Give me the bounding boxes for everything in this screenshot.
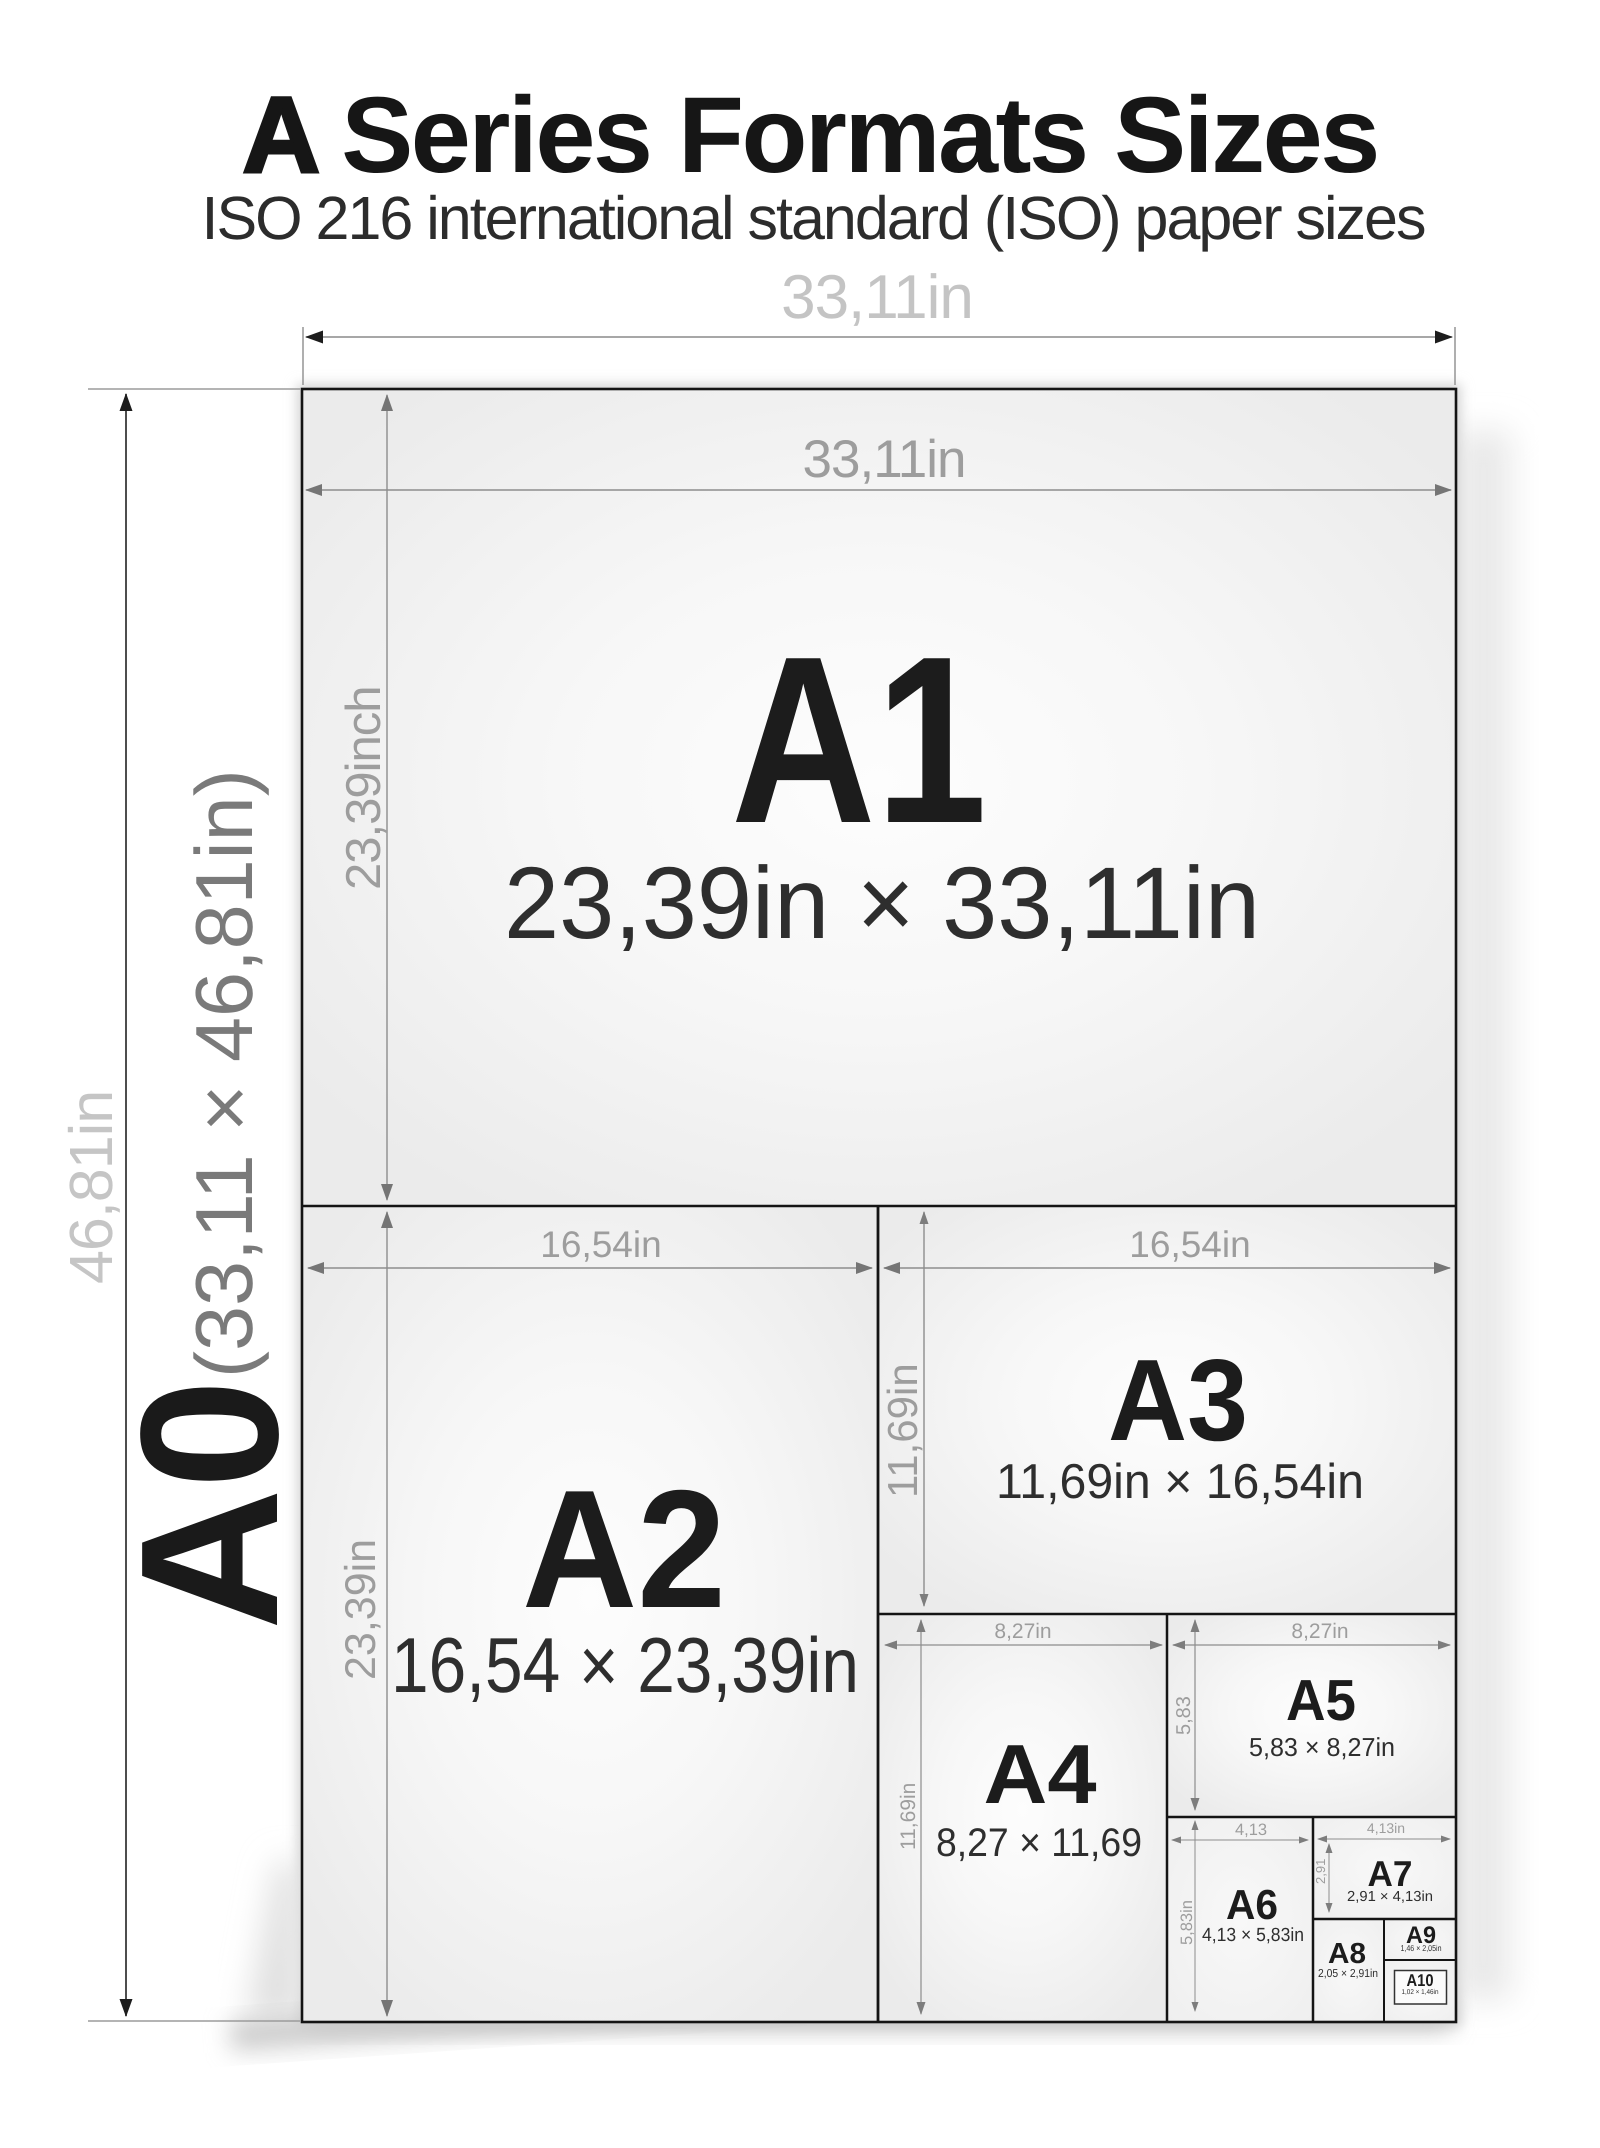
svg-text:23,39in: 23,39in (337, 1539, 385, 1680)
svg-text:1,46 × 2,05in: 1,46 × 2,05in (1401, 1943, 1442, 1953)
svg-text:A5: A5 (1286, 1668, 1356, 1733)
svg-text:4,13in: 4,13in (1367, 1820, 1405, 1836)
svg-text:11,69in × 16,54in: 11,69in × 16,54in (996, 1455, 1364, 1509)
svg-text:5,83: 5,83 (1173, 1696, 1195, 1735)
svg-text:8,27in: 8,27in (994, 1620, 1051, 1643)
svg-text:A1: A1 (731, 608, 987, 873)
svg-text:23,39inch: 23,39inch (337, 686, 391, 890)
svg-text:5,83 × 8,27in: 5,83 × 8,27in (1249, 1732, 1395, 1762)
svg-text:23,39in × 33,11in: 23,39in × 33,11in (504, 846, 1260, 960)
svg-text:33,11in: 33,11in (781, 263, 973, 332)
svg-text:A0: A0 (100, 1379, 319, 1630)
svg-text:16,54in: 16,54in (540, 1224, 661, 1265)
svg-text:33,11in: 33,11in (803, 430, 966, 489)
svg-text:(33,11 × 46,81in): (33,11 × 46,81in) (180, 769, 270, 1378)
svg-text:ISO 216 international standard: ISO 216 international standard (ISO) pap… (202, 184, 1425, 252)
svg-text:2,91 × 4,13in: 2,91 × 4,13in (1347, 1889, 1433, 1905)
svg-text:1,02 × 1,46in: 1,02 × 1,46in (1402, 1988, 1439, 1996)
svg-text:8,27 × 11,69: 8,27 × 11,69 (936, 1821, 1142, 1865)
svg-text:11,69in: 11,69in (897, 1783, 920, 1850)
svg-text:8,27in: 8,27in (1291, 1620, 1348, 1643)
svg-text:A Series Formats Sizes: A Series Formats Sizes (242, 74, 1378, 195)
svg-text:4,13: 4,13 (1235, 1821, 1267, 1839)
svg-text:16,54 × 23,39in: 16,54 × 23,39in (391, 1621, 859, 1709)
svg-text:16,54in: 16,54in (1129, 1224, 1250, 1265)
svg-text:2,05 × 2,91in: 2,05 × 2,91in (1318, 1968, 1378, 1980)
svg-text:A4: A4 (984, 1727, 1097, 1821)
svg-text:2,91: 2,91 (1313, 1859, 1328, 1884)
svg-text:A8: A8 (1328, 1938, 1366, 1970)
svg-text:A10: A10 (1407, 1971, 1434, 1990)
svg-text:A7: A7 (1368, 1853, 1413, 1894)
svg-text:5,83in: 5,83in (1178, 1900, 1196, 1945)
svg-text:4,13 × 5,83in: 4,13 × 5,83in (1202, 1925, 1304, 1946)
svg-text:46,81in: 46,81in (57, 1091, 125, 1284)
svg-text:A3: A3 (1108, 1335, 1248, 1465)
svg-text:A2: A2 (522, 1455, 726, 1643)
svg-text:A6: A6 (1226, 1881, 1278, 1928)
svg-text:11,69in: 11,69in (879, 1363, 926, 1498)
